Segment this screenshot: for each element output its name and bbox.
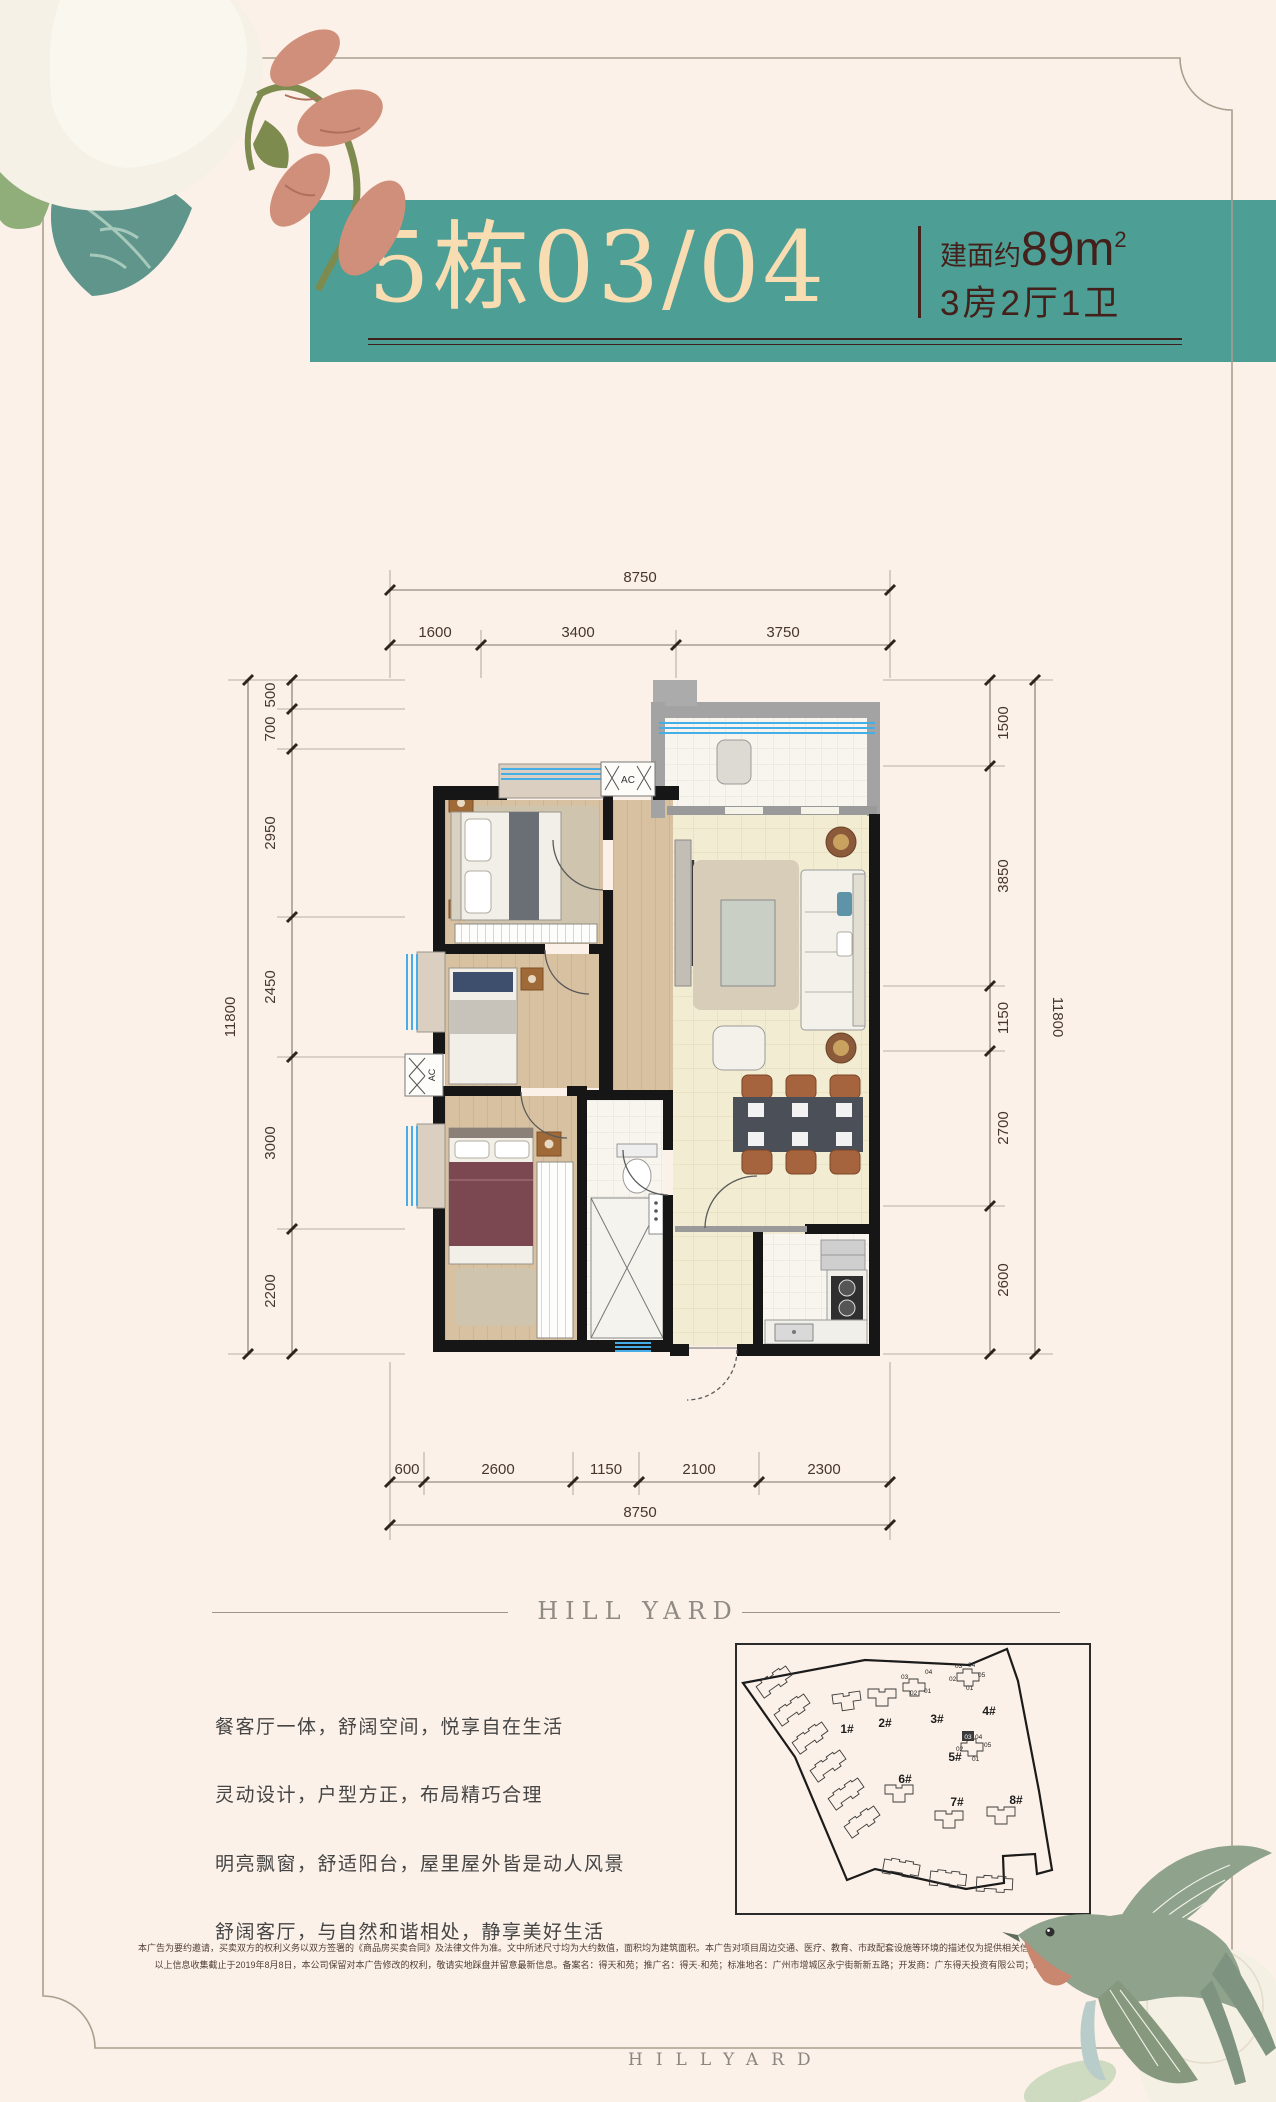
svg-text:2600: 2600 [995, 1263, 1012, 1296]
site-buildings [755, 1664, 1015, 1893]
leaf-green-icon [253, 120, 289, 168]
svg-text:3400: 3400 [561, 624, 594, 641]
svg-text:2950: 2950 [262, 816, 279, 849]
sofa-pillow [837, 892, 852, 916]
coffee-table [721, 900, 775, 986]
svg-text:03: 03 [964, 1734, 972, 1741]
dining-chair [786, 1075, 816, 1099]
dining-chair [742, 1075, 772, 1099]
svg-text:8750: 8750 [623, 1504, 656, 1521]
bird-beak [1002, 1932, 1020, 1942]
dining-chair [830, 1150, 860, 1174]
svg-text:3000: 3000 [262, 1126, 279, 1159]
svg-text:05: 05 [978, 1672, 986, 1679]
floorplan-figure: 8750 1600 3400 3750 600 2600 1150 2100 2… [165, 540, 1080, 1550]
svg-text:02: 02 [910, 1690, 918, 1697]
armchair [713, 1026, 765, 1070]
ac-box-left: AC [405, 1054, 443, 1096]
svg-text:AC: AC [427, 1068, 437, 1081]
svg-text:03: 03 [901, 1674, 909, 1681]
svg-text:6#: 6# [898, 1772, 912, 1786]
svg-text:8750: 8750 [623, 569, 656, 586]
balcony-floor [665, 718, 867, 808]
entry-door-arc [687, 1350, 737, 1400]
svg-text:04: 04 [925, 1669, 933, 1676]
bedroom3-blanket [449, 1162, 533, 1246]
bedroom3-rug [455, 1268, 535, 1326]
svg-text:2450: 2450 [262, 970, 279, 1003]
dining-chair [786, 1150, 816, 1174]
svg-text:1150: 1150 [590, 1461, 622, 1478]
svg-text:700: 700 [262, 716, 279, 741]
svg-text:01: 01 [966, 1685, 974, 1692]
svg-text:01: 01 [972, 1756, 980, 1763]
svg-text:3750: 3750 [766, 624, 799, 641]
svg-text:8#: 8# [1009, 1793, 1023, 1807]
svg-text:01: 01 [924, 1688, 932, 1695]
svg-text:03: 03 [955, 1663, 963, 1670]
svg-text:02: 02 [956, 1746, 964, 1753]
svg-text:2#: 2# [878, 1716, 892, 1730]
svg-text:4#: 4# [982, 1704, 996, 1718]
floorplan-poster: 5栋03/04 建面约89m2 3房2厅1卫 [0, 0, 1276, 2102]
marketing-line-1: 餐客厅一体，舒阔空间，悦享自在生活 [215, 1712, 564, 1739]
washer [649, 1194, 663, 1234]
footer-brand: HILLYARD [628, 2050, 824, 2070]
unit-area: 建面约89m2 [940, 214, 1127, 282]
dining-chair [742, 1150, 772, 1174]
svg-text:1500: 1500 [995, 706, 1012, 739]
ac-box-top: AC [601, 762, 655, 796]
legal-line-2: 以上信息收集截止于2019年8月8日，本公司保留对本广告修改的权利，敬请实地踩盘… [138, 1958, 1138, 1971]
swallow-icon [1002, 1845, 1276, 2085]
svg-text:1#: 1# [840, 1722, 854, 1736]
bird-decoration-bottomright [1000, 1840, 1276, 2102]
tv-console [675, 840, 691, 986]
dining-chair [830, 1075, 860, 1099]
svg-text:2200: 2200 [262, 1274, 279, 1307]
svg-text:7#: 7# [950, 1795, 964, 1809]
svg-text:04: 04 [968, 1662, 976, 1669]
unit-spec: 建面约89m2 3房2厅1卫 [940, 214, 1127, 326]
svg-text:04: 04 [975, 1734, 983, 1741]
legal-line-1: 本广告为要约邀请，买卖双方的权利义务以双方签署的《商品房买卖合同》及法律文件为准… [138, 1941, 1138, 1954]
svg-text:2700: 2700 [995, 1111, 1012, 1144]
divider-line-left [212, 1612, 508, 1613]
master-wardrobe [455, 924, 597, 943]
marketing-line-4: 舒阔客厅，与自然和谐相处，静享美好生活 [215, 1917, 605, 1944]
unit-banner: 5栋03/04 建面约89m2 3房2厅1卫 [310, 200, 1276, 362]
leaf-pale-icon [1018, 2050, 1122, 2102]
svg-text:1600: 1600 [418, 624, 451, 641]
floral-decoration-topleft [0, 0, 430, 300]
flower-bud-icon [325, 170, 420, 286]
svg-text:2300: 2300 [807, 1461, 840, 1478]
svg-text:11800: 11800 [1049, 997, 1066, 1038]
divider-line-right [742, 1612, 1060, 1613]
svg-text:11800: 11800 [222, 997, 239, 1038]
svg-text:AC: AC [621, 775, 635, 786]
svg-text:3#: 3# [930, 1712, 944, 1726]
site-building-labels: 1# 2# 3# 4# 5# 6# 7# 8# [840, 1704, 1023, 1809]
marketing-line-2: 灵动设计，户型方正，布局精巧合理 [215, 1780, 543, 1807]
svg-text:2100: 2100 [682, 1461, 715, 1478]
svg-text:600: 600 [394, 1461, 419, 1478]
unit-layout: 3房2厅1卫 [940, 282, 1127, 326]
unit-title: 5栋03/04 [368, 208, 827, 328]
brand-hill-yard: HILL YARD [528, 1597, 748, 1625]
corridor-floor [613, 800, 673, 1090]
svg-text:1150: 1150 [995, 1002, 1012, 1034]
svg-text:500: 500 [262, 682, 279, 707]
balcony-chair [717, 740, 751, 784]
marketing-line-3: 明亮飘窗，舒适阳台，屋里屋外皆是动人风景 [215, 1849, 625, 1876]
bedroom3-wardrobe [537, 1162, 573, 1338]
svg-text:05: 05 [984, 1742, 992, 1749]
svg-text:2600: 2600 [481, 1461, 514, 1478]
svg-text:02: 02 [949, 1676, 957, 1683]
banner-rule [368, 338, 1182, 345]
svg-text:3850: 3850 [995, 859, 1012, 892]
site-unit-labels: 03 04 02 01 03 04 02 05 01 03 04 02 05 0… [901, 1662, 992, 1763]
toilet [623, 1159, 651, 1193]
banner-divider [918, 226, 921, 318]
master-bed-throw [509, 812, 539, 920]
